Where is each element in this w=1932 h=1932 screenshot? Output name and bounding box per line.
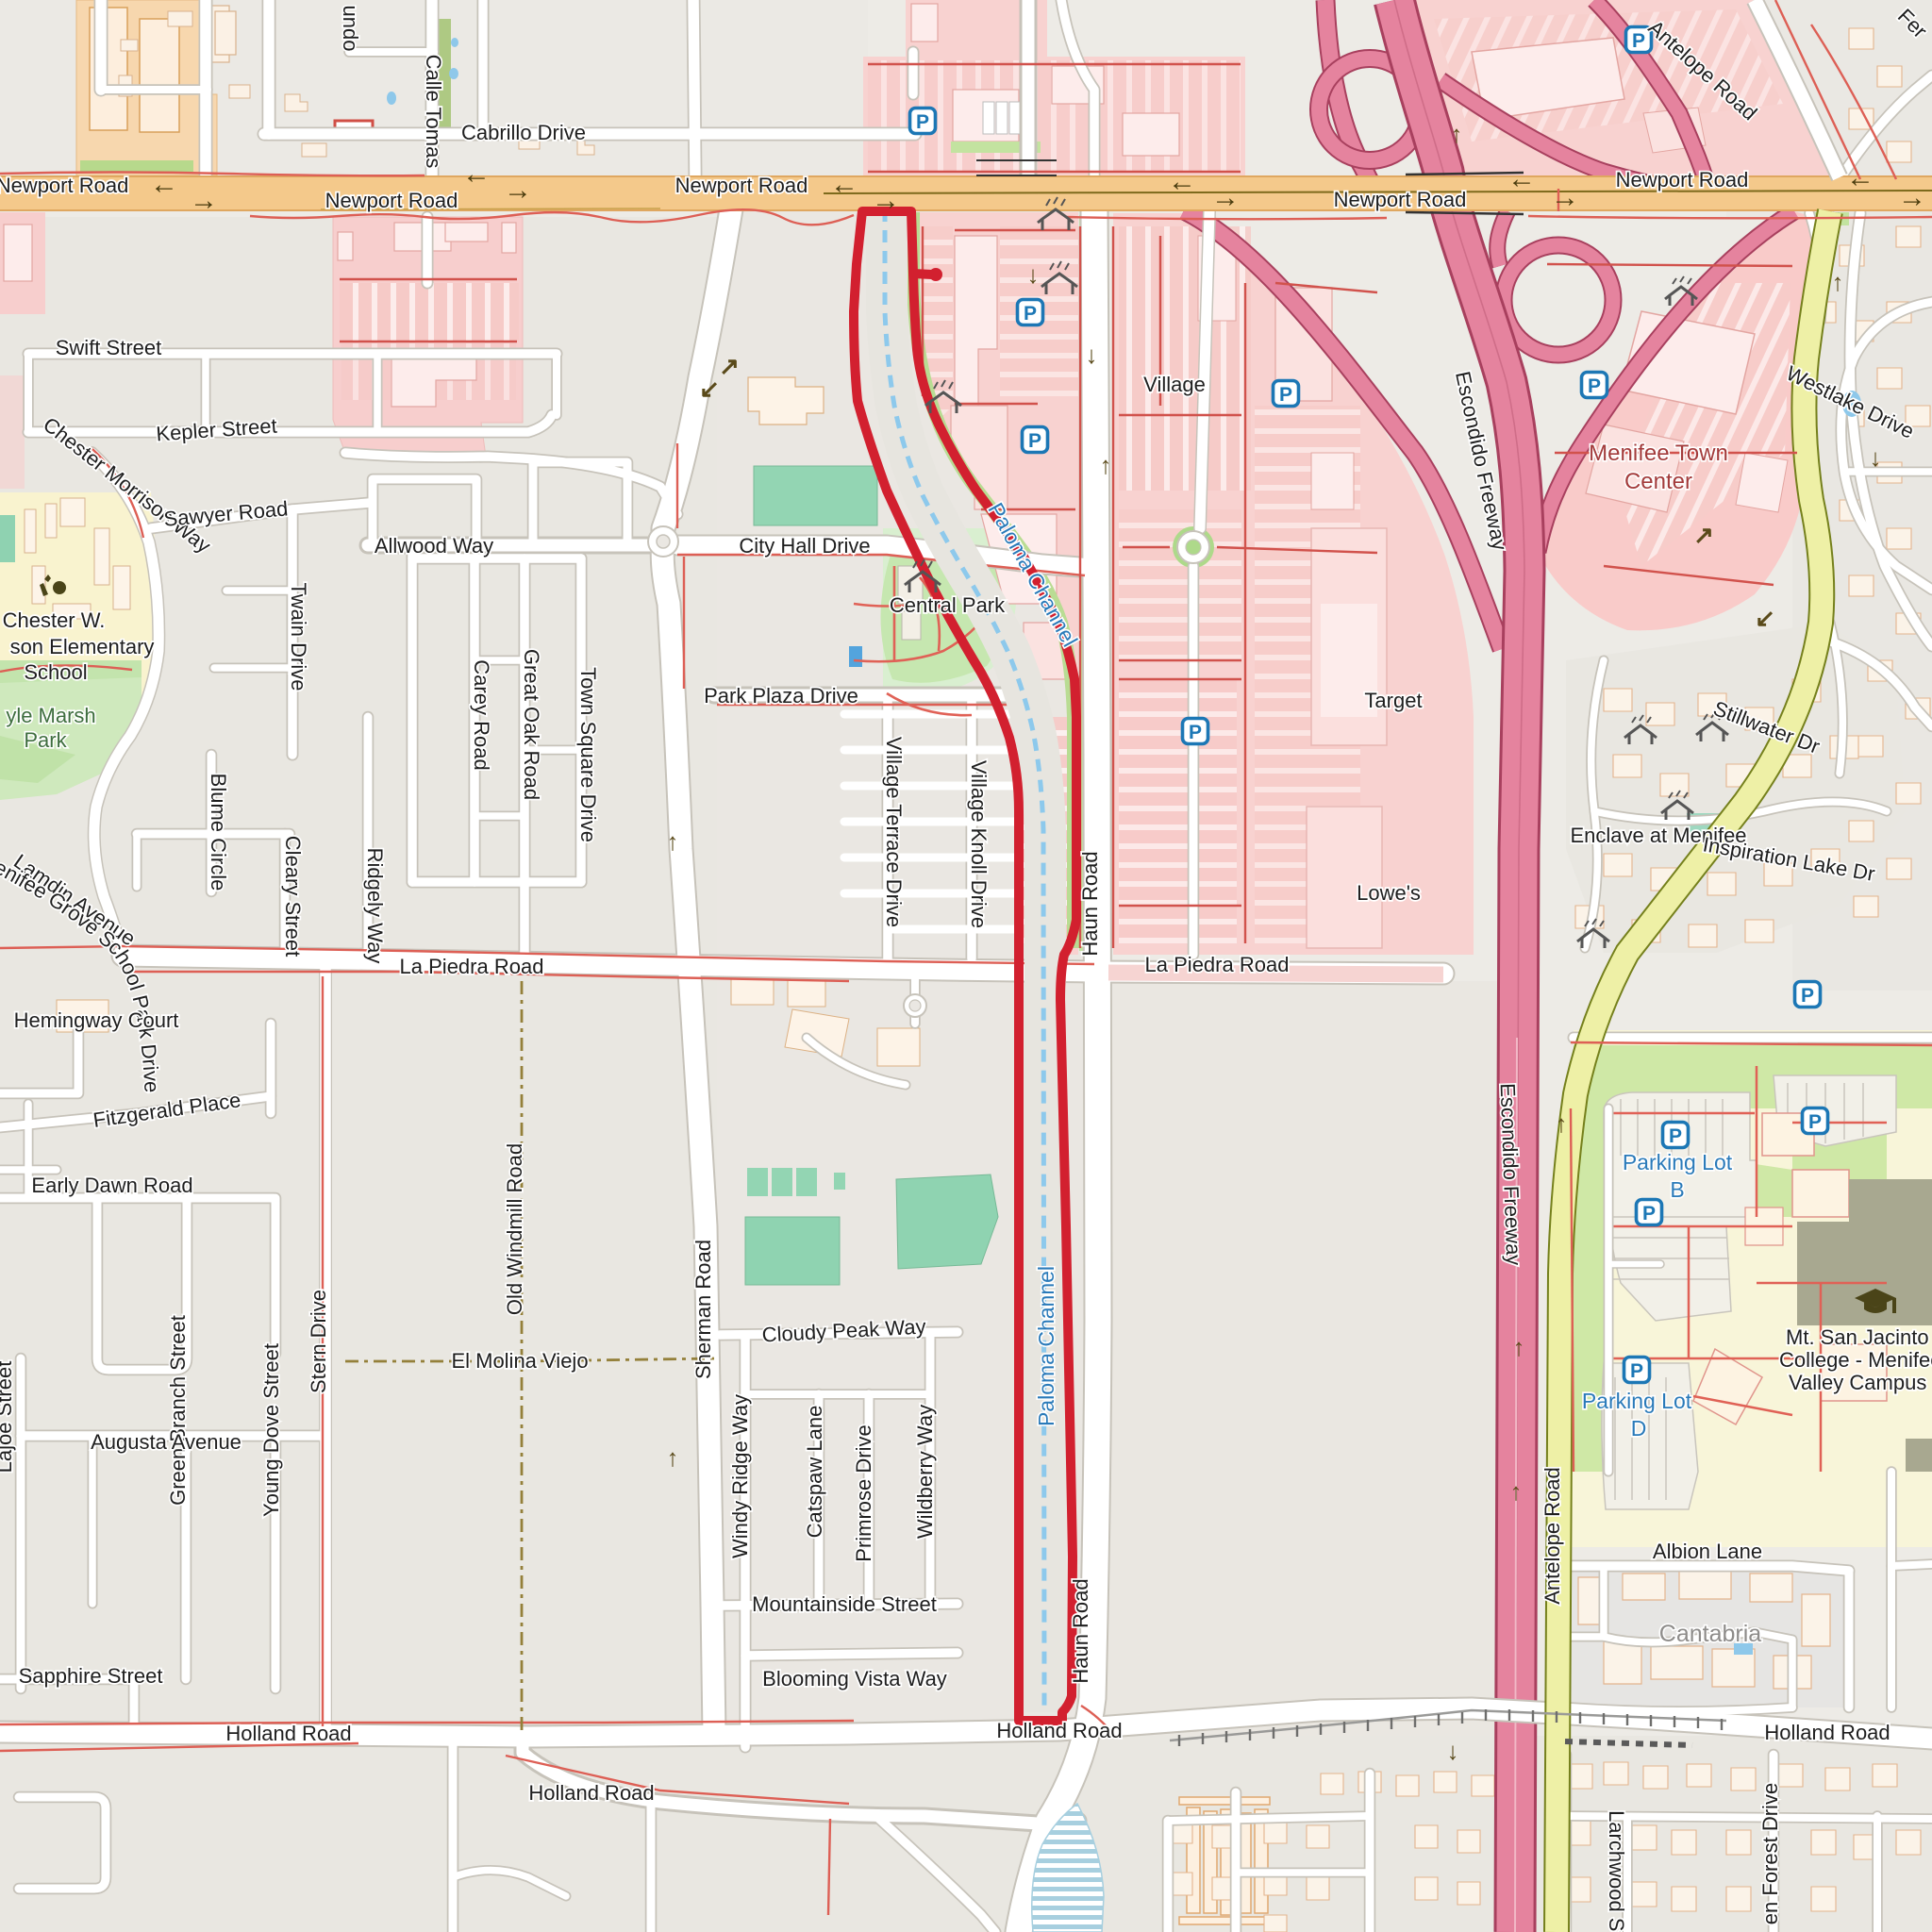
svg-text:Antelope Road: Antelope Road — [1541, 1467, 1564, 1605]
svg-text:Blooming Vista Way: Blooming Vista Way — [762, 1667, 947, 1690]
svg-text:Park: Park — [24, 728, 67, 752]
svg-text:Haun Road: Haun Road — [1078, 851, 1102, 956]
svg-text:Central Park: Central Park — [890, 593, 1006, 617]
svg-text:Allwood Way: Allwood Way — [375, 534, 493, 558]
svg-text:Newport Road: Newport Road — [675, 174, 808, 197]
svg-text:Cabrillo Drive: Cabrillo Drive — [461, 121, 586, 144]
svg-text:Stern Drive: Stern Drive — [307, 1290, 330, 1393]
svg-text:P: P — [1279, 384, 1292, 406]
svg-text:Haun Road: Haun Road — [1069, 1578, 1092, 1683]
svg-text:↓: ↓ — [1027, 260, 1040, 289]
svg-text:Newport Road: Newport Road — [0, 174, 128, 197]
svg-text:son Elementary: son Elementary — [10, 635, 155, 658]
svg-text:Lajoe Street: Lajoe Street — [0, 1361, 16, 1474]
svg-text:↑: ↑ — [1513, 1333, 1525, 1361]
svg-text:Twain Drive: Twain Drive — [287, 583, 310, 691]
svg-text:Windy Ridge Way: Windy Ridge Way — [728, 1394, 752, 1558]
svg-text:Primrose Drive: Primrose Drive — [852, 1424, 875, 1561]
svg-text:School: School — [24, 660, 87, 684]
svg-text:Parking Lot: Parking Lot — [1623, 1150, 1733, 1174]
svg-text:Newport Road: Newport Road — [1334, 188, 1467, 211]
svg-text:←: ← — [1168, 166, 1196, 197]
svg-text:→: → — [1211, 182, 1240, 213]
svg-text:Cantabria: Cantabria — [1659, 1621, 1761, 1647]
svg-text:Calle Tomas: Calle Tomas — [422, 55, 445, 169]
svg-text:P: P — [1632, 30, 1645, 52]
svg-text:City Hall Drive: City Hall Drive — [739, 534, 870, 558]
svg-text:P: P — [1630, 1360, 1643, 1382]
svg-text:Village Terrace Drive: Village Terrace Drive — [882, 737, 906, 927]
svg-text:→: → — [872, 185, 900, 216]
svg-text:Wildberry Way: Wildberry Way — [913, 1405, 937, 1539]
svg-text:Village Knoll Drive: Village Knoll Drive — [967, 760, 991, 928]
svg-text:→: → — [1551, 182, 1579, 213]
svg-text:undo: undo — [339, 6, 362, 52]
svg-text:Holland Road: Holland Road — [528, 1781, 654, 1805]
svg-text:Holland Road: Holland Road — [996, 1719, 1122, 1742]
svg-text:Early Dawn Road: Early Dawn Road — [31, 1174, 192, 1197]
svg-text:←: ← — [1846, 162, 1874, 193]
svg-text:en Forest Drive: en Forest Drive — [1758, 1783, 1782, 1924]
svg-text:College - Menifee: College - Menifee — [1779, 1348, 1932, 1372]
svg-text:Carey Road: Carey Road — [470, 659, 493, 770]
svg-text:P: P — [1024, 303, 1037, 325]
svg-text:Chester W.: Chester W. — [3, 608, 106, 632]
svg-text:→: → — [190, 185, 218, 216]
svg-text:La Piedra Road: La Piedra Road — [1145, 953, 1290, 976]
svg-text:Mountainside Street: Mountainside Street — [752, 1592, 937, 1616]
svg-text:D: D — [1631, 1416, 1647, 1441]
svg-text:Cleary Street: Cleary Street — [281, 836, 305, 957]
svg-text:El Molina Viejo: El Molina Viejo — [451, 1349, 588, 1373]
svg-text:Young Dove Street: Young Dove Street — [259, 1343, 283, 1517]
svg-text:Village: Village — [1143, 373, 1206, 396]
svg-text:P: P — [1669, 1125, 1682, 1147]
svg-text:→: → — [504, 175, 532, 206]
svg-text:←: ← — [150, 169, 178, 200]
svg-text:↗: ↗ — [719, 352, 740, 380]
svg-text:Augusta Avenue: Augusta Avenue — [91, 1430, 241, 1454]
svg-text:↓: ↓ — [1447, 1737, 1459, 1765]
svg-text:Sherman Road: Sherman Road — [691, 1240, 715, 1379]
svg-text:Great Oak Road: Great Oak Road — [520, 649, 543, 800]
svg-text:Ridgely Way: Ridgely Way — [363, 848, 387, 964]
svg-text:Lowe's: Lowe's — [1357, 881, 1421, 905]
svg-text:Paloma Channel: Paloma Channel — [1034, 1266, 1058, 1426]
svg-text:Holland Road: Holland Road — [1764, 1721, 1890, 1744]
svg-text:B: B — [1670, 1177, 1684, 1202]
svg-text:↑: ↑ — [667, 1443, 679, 1472]
svg-text:↑: ↑ — [1832, 268, 1844, 296]
svg-text:P: P — [1808, 1111, 1822, 1133]
svg-text:Town Square Drive: Town Square Drive — [576, 667, 600, 842]
svg-text:Holland Road: Holland Road — [225, 1722, 351, 1745]
svg-text:↑: ↑ — [1556, 1109, 1568, 1138]
svg-text:↓: ↓ — [1086, 341, 1098, 369]
svg-text:Blume Circle: Blume Circle — [207, 774, 230, 891]
svg-text:←: ← — [462, 158, 491, 190]
svg-text:Hemingway Court: Hemingway Court — [14, 1008, 179, 1032]
svg-text:Target: Target — [1364, 689, 1422, 712]
svg-text:↙: ↙ — [699, 375, 720, 403]
svg-text:←: ← — [1507, 163, 1536, 194]
svg-text:P: P — [1588, 375, 1601, 397]
svg-text:P: P — [916, 111, 929, 133]
svg-text:Swift Street: Swift Street — [56, 336, 161, 359]
svg-text:↙: ↙ — [1755, 604, 1775, 632]
svg-text:P: P — [1642, 1203, 1656, 1224]
svg-text:P: P — [1028, 430, 1041, 452]
svg-text:↑: ↑ — [1100, 451, 1112, 479]
svg-text:Mt. San Jacinto: Mt. San Jacinto — [1786, 1325, 1929, 1349]
svg-text:↓: ↓ — [1870, 443, 1882, 472]
svg-text:↑: ↑ — [1451, 120, 1463, 148]
svg-text:Newport Road: Newport Road — [325, 189, 458, 212]
svg-text:Larchwood Str: Larchwood Str — [1605, 1810, 1628, 1932]
svg-text:La Piedra Road: La Piedra Road — [400, 955, 544, 978]
svg-text:↗: ↗ — [1693, 521, 1714, 549]
svg-text:Old Windmill Road: Old Windmill Road — [503, 1143, 526, 1315]
svg-text:Park Plaza Drive: Park Plaza Drive — [704, 684, 858, 708]
svg-text:↑: ↑ — [1510, 1477, 1523, 1506]
svg-text:Green Branch Street: Green Branch Street — [166, 1315, 190, 1506]
svg-text:Catspaw Lane: Catspaw Lane — [803, 1406, 826, 1539]
svg-text:Valley Campus: Valley Campus — [1789, 1371, 1926, 1394]
svg-text:←: ← — [830, 169, 858, 200]
svg-text:→: → — [1898, 182, 1926, 213]
svg-text:Albion Lane: Albion Lane — [1653, 1540, 1762, 1563]
svg-text:Parking Lot: Parking Lot — [1582, 1389, 1692, 1413]
svg-text:↑: ↑ — [667, 827, 679, 856]
svg-text:Sapphire Street: Sapphire Street — [19, 1664, 163, 1688]
svg-text:Menifee Town: Menifee Town — [1589, 441, 1728, 466]
svg-text:P: P — [1801, 985, 1814, 1007]
svg-text:Center: Center — [1624, 469, 1692, 494]
svg-text:P: P — [1189, 722, 1202, 743]
svg-text:yle Marsh: yle Marsh — [6, 704, 95, 727]
svg-text:Newport Road: Newport Road — [1616, 168, 1749, 192]
